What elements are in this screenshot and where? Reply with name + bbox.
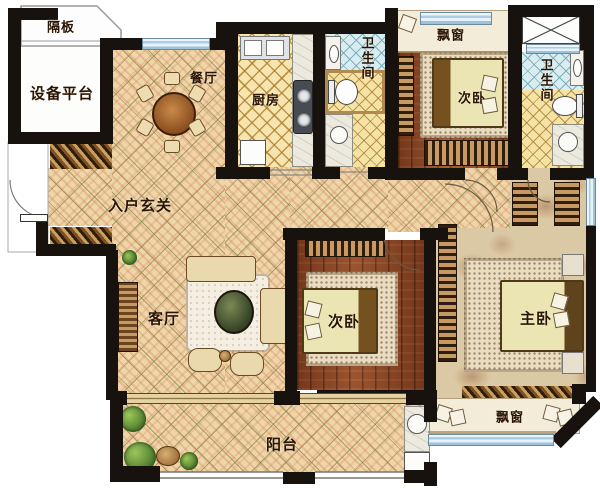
room-label-balcony: 阳台 — [266, 434, 298, 455]
wall — [580, 5, 594, 50]
wall — [404, 470, 424, 483]
room-label-master: 主卧 — [520, 308, 552, 329]
label-bay-window-top: 飘窗 — [437, 25, 465, 44]
wall — [584, 45, 594, 180]
balcony-sliding-door — [299, 393, 409, 404]
room-label-dining: 餐厅 — [190, 68, 218, 87]
wall — [385, 8, 398, 168]
room-label-equipment: 设备平台 — [30, 83, 94, 104]
window-bath2 — [526, 44, 580, 54]
room-label-foyer: 入户玄关 — [108, 195, 172, 216]
wall — [385, 168, 465, 180]
wall — [283, 228, 385, 240]
wall — [216, 22, 395, 34]
wall — [313, 34, 325, 167]
room-label-bath1: 卫生间 — [357, 36, 376, 81]
balcony-sliding-door — [123, 393, 275, 404]
window-dining — [142, 38, 210, 50]
duct-x-mark — [522, 16, 580, 44]
floor-plan: 隔板 设备平台 餐厅 厨房 卫生间 飘窗 次卧 卫生间 入户玄关 客厅 次卧 主… — [0, 0, 600, 488]
wall — [36, 244, 116, 256]
sliding-post — [115, 391, 127, 405]
bedroom-top-door-arc — [465, 180, 497, 212]
wall — [225, 34, 238, 167]
sliding-post — [406, 391, 426, 405]
room-label-living: 客厅 — [148, 308, 180, 329]
room-label-bedroom-top: 次卧 — [458, 88, 486, 107]
wall — [106, 250, 118, 400]
wall — [8, 132, 113, 144]
wall — [8, 8, 21, 144]
entry-door-leaf — [20, 214, 48, 222]
wall — [508, 5, 522, 180]
room-label-bedroom-mid: 次卧 — [328, 311, 360, 332]
window-master-right — [586, 178, 596, 226]
wall — [424, 462, 437, 486]
room-label-kitchen: 厨房 — [252, 90, 280, 109]
window-bay-top — [420, 12, 492, 25]
window-bay-bottom — [428, 434, 554, 446]
master-door-arc — [445, 184, 493, 232]
kitchen-door-line — [270, 170, 312, 175]
bedroom-mid-door-arc — [384, 234, 420, 270]
balcony-railing — [158, 472, 404, 478]
wall — [283, 472, 315, 484]
wall — [424, 240, 436, 402]
wall — [572, 384, 586, 404]
wall — [285, 228, 297, 403]
sliding-post — [274, 391, 300, 405]
wall — [586, 224, 596, 392]
wall — [420, 228, 448, 240]
wall — [110, 466, 160, 482]
bath2-door-arc — [528, 180, 550, 202]
wall — [100, 38, 142, 50]
label-bay-window-bottom: 飘窗 — [496, 407, 524, 426]
wall — [508, 168, 528, 180]
wall — [216, 167, 270, 179]
wall — [100, 38, 113, 144]
wall — [312, 167, 340, 179]
room-label-partition: 隔板 — [47, 17, 75, 36]
room-label-bath2: 卫生间 — [536, 58, 555, 103]
